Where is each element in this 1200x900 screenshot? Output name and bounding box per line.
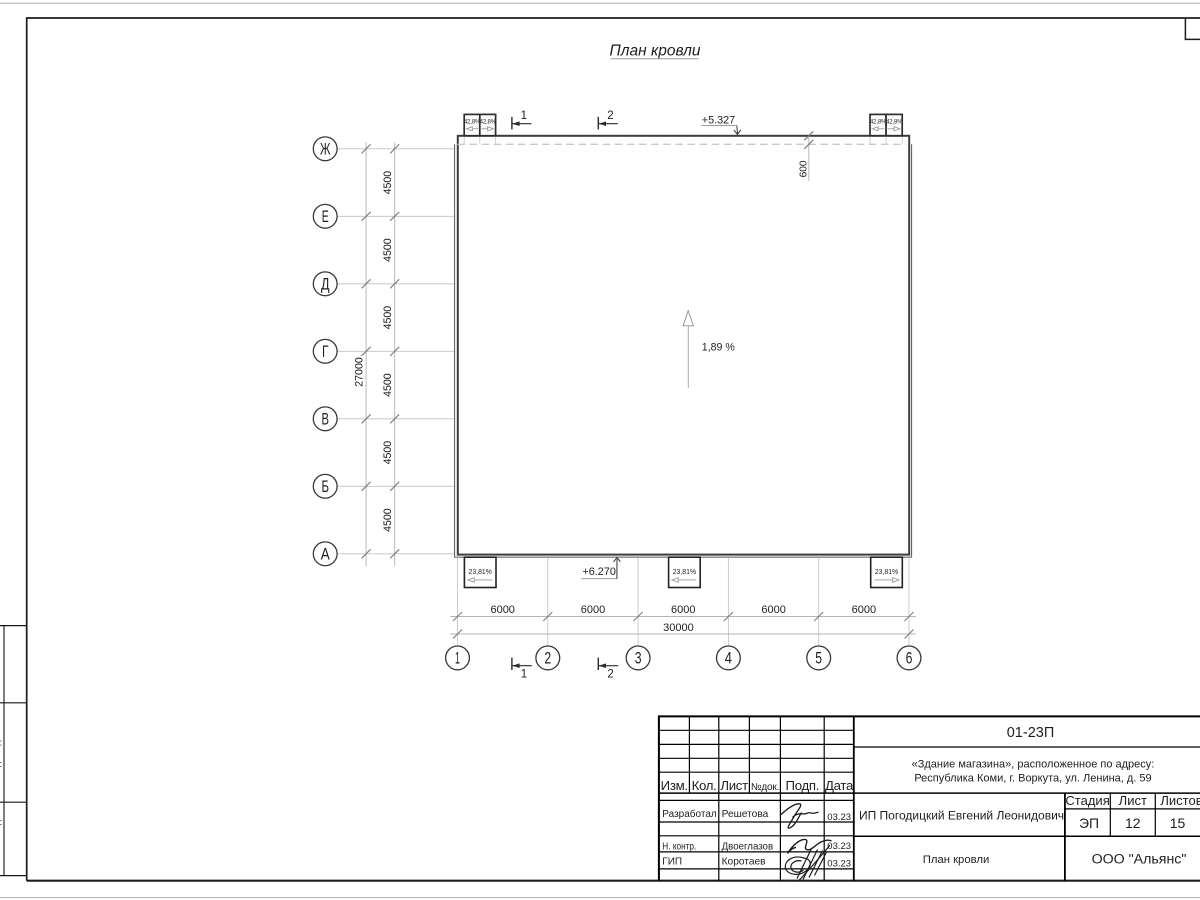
svg-text:ООО "Альянс": ООО "Альянс" xyxy=(1092,851,1187,867)
svg-text:23,81%: 23,81% xyxy=(673,569,696,576)
svg-text:1,89 %: 1,89 % xyxy=(702,341,736,353)
svg-text:Решетова: Решетова xyxy=(722,809,769,820)
svg-text:1: 1 xyxy=(521,669,527,681)
svg-text:Г: Г xyxy=(322,343,329,361)
svg-text:03.23: 03.23 xyxy=(827,841,851,852)
svg-text:6000: 6000 xyxy=(581,604,605,616)
svg-text:6000: 6000 xyxy=(761,604,785,616)
svg-text:ЭП: ЭП xyxy=(1079,815,1099,831)
svg-text:4500: 4500 xyxy=(382,171,394,195)
svg-text:+5.327: +5.327 xyxy=(702,115,735,127)
svg-text:Ж: Ж xyxy=(320,141,331,159)
svg-text:23,81%: 23,81% xyxy=(875,569,898,576)
svg-text:Е: Е xyxy=(322,208,329,226)
svg-text:01-23П: 01-23П xyxy=(1007,725,1055,741)
svg-text:Б: Б xyxy=(321,478,329,496)
svg-text:План кровли: План кровли xyxy=(610,43,701,60)
svg-text:6000: 6000 xyxy=(671,604,695,616)
svg-text:Инв. № подл.: Инв. № подл. xyxy=(0,812,2,865)
svg-text:2: 2 xyxy=(607,669,613,681)
svg-text:4500: 4500 xyxy=(382,306,394,330)
svg-text:42,8%: 42,8% xyxy=(480,120,497,126)
svg-text:«Здание магазина», расположенн: «Здание магазина», расположенное по адре… xyxy=(912,758,1155,770)
svg-text:4500: 4500 xyxy=(382,373,394,397)
svg-text:Н. контр.: Н. контр. xyxy=(662,842,696,853)
svg-text:4500: 4500 xyxy=(382,441,394,465)
svg-text:Листов: Листов xyxy=(1160,793,1200,808)
svg-text:6000: 6000 xyxy=(490,604,514,616)
svg-text:12: 12 xyxy=(1125,815,1141,831)
svg-text:5: 5 xyxy=(815,650,822,668)
svg-text:Д: Д xyxy=(321,276,330,294)
svg-text:600: 600 xyxy=(798,160,809,177)
svg-text:42,8%: 42,8% xyxy=(870,120,887,126)
svg-text:03.23: 03.23 xyxy=(827,812,851,823)
svg-text:27000: 27000 xyxy=(353,357,365,387)
svg-text:Дата: Дата xyxy=(825,778,854,793)
svg-text:42,8%: 42,8% xyxy=(886,120,903,126)
svg-text:30000: 30000 xyxy=(663,622,694,634)
svg-text:Коротаев: Коротаев xyxy=(722,857,766,868)
svg-text:Лист: Лист xyxy=(720,778,748,793)
svg-text:ИП Погодицкий Евгений Леонидов: ИП Погодицкий Евгений Леонидович xyxy=(859,809,1064,823)
svg-text:Разработал: Разработал xyxy=(662,808,717,820)
svg-text:6: 6 xyxy=(906,650,913,668)
svg-text:Стадия: Стадия xyxy=(1065,793,1109,808)
svg-text:ГИП: ГИП xyxy=(662,857,682,868)
svg-text:1: 1 xyxy=(521,110,527,122)
svg-text:2: 2 xyxy=(607,110,613,122)
svg-text:Кол.: Кол. xyxy=(692,778,717,793)
svg-text:42,8%: 42,8% xyxy=(464,120,481,126)
svg-text:Взам. инв. №: Взам. инв. № xyxy=(0,638,2,691)
svg-text:+6.270: +6.270 xyxy=(583,566,616,578)
svg-text:Подп. и дата: Подп. и дата xyxy=(0,727,2,777)
svg-text:Лист: Лист xyxy=(1119,793,1147,808)
svg-text:15: 15 xyxy=(1170,815,1186,831)
svg-text:Республика Коми, г. Воркута, у: Республика Коми, г. Воркута, ул. Ленина,… xyxy=(914,773,1151,785)
svg-text:4500: 4500 xyxy=(382,508,394,532)
svg-text:4: 4 xyxy=(725,650,732,668)
svg-text:Изм.: Изм. xyxy=(661,778,688,793)
svg-text:План кровли: План кровли xyxy=(923,854,990,866)
svg-text:3: 3 xyxy=(635,650,642,668)
svg-text:1: 1 xyxy=(455,650,460,668)
svg-text:6000: 6000 xyxy=(852,604,876,616)
svg-text:2: 2 xyxy=(544,650,551,668)
svg-text:4500: 4500 xyxy=(382,238,394,262)
svg-text:В: В xyxy=(321,411,329,429)
svg-text:03.23: 03.23 xyxy=(827,858,851,869)
svg-text:№док.: №док. xyxy=(751,782,779,793)
svg-text:А: А xyxy=(321,546,330,564)
svg-text:Подп.: Подп. xyxy=(786,778,820,793)
svg-text:23,81%: 23,81% xyxy=(469,569,492,576)
svg-text:Двоеглазов: Двоеглазов xyxy=(722,842,774,853)
